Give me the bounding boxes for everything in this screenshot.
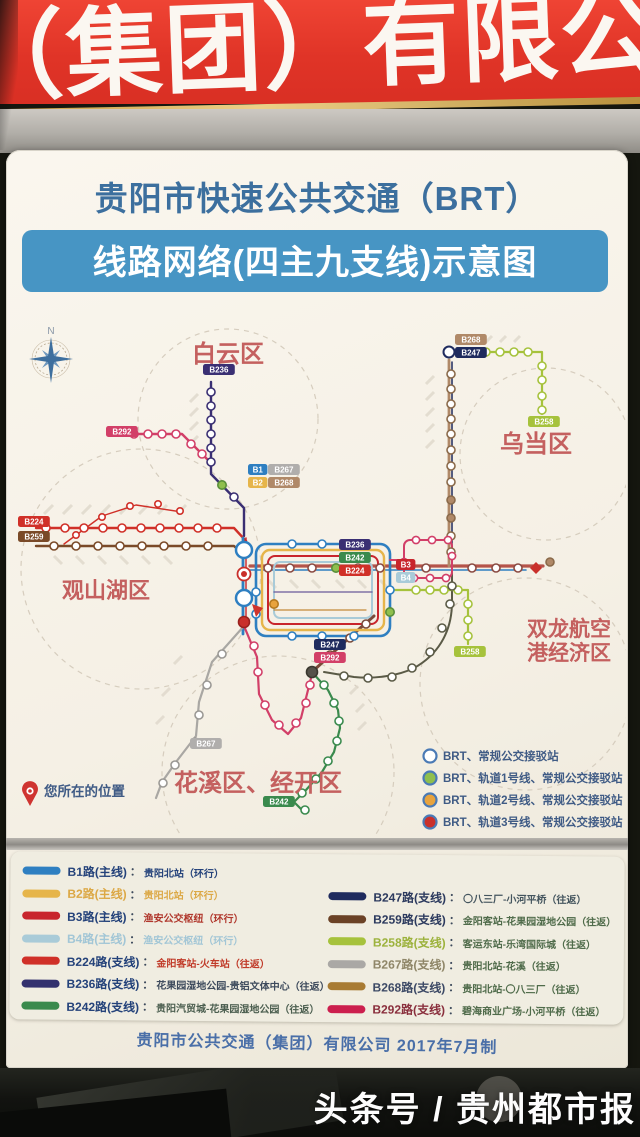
compass-icon: [29, 337, 73, 383]
route-badge-b3: B3: [396, 559, 415, 570]
svg-text:B258: B258: [460, 648, 480, 657]
frame-seam: [6, 838, 628, 850]
svg-text:B2: B2: [253, 479, 264, 488]
company-red-banner: （集团）有限公司: [0, 0, 640, 104]
legend-row: B259路(支线)：金阳客站-花果园湿地公园（往返）: [328, 908, 616, 933]
route-badge-b268: B268: [268, 477, 300, 488]
legend-row: B292路(支线)：碧海商业广场-小河平桥（往返）: [327, 998, 615, 1023]
svg-text:B258: B258: [534, 418, 554, 427]
legend-row: B267路(支线)：贵阳北站-花溪（往返）: [328, 953, 616, 978]
legend-route-name: B236路(支线): [67, 975, 140, 993]
route-badge-b224: B224: [18, 516, 50, 527]
interchange-station: [236, 542, 252, 558]
legend-row: B3路(主线)：渔安公交枢纽（环行）: [22, 904, 330, 929]
legend-route-desc: 贵阳北站（环行）: [144, 864, 224, 880]
route-badge-b236: B236: [339, 539, 371, 550]
route-badge-b247: B247: [314, 639, 346, 650]
legend-separator: ：: [448, 957, 459, 973]
svg-text:B242: B242: [345, 554, 365, 563]
svg-text:B292: B292: [320, 654, 340, 663]
legend-route-desc: 贵阳北站（环行）: [144, 887, 224, 903]
legend-route-name: B259路(支线): [373, 911, 446, 929]
route-badge-b242: B242: [339, 552, 371, 563]
legend-route-desc: 贵阳北站-花溪（往返）: [462, 958, 565, 974]
route-badge-b1: B1: [248, 464, 267, 475]
region-label: 港经济区: [527, 641, 611, 665]
watermark-text: 头条号 / 贵州都市报: [314, 1082, 636, 1131]
legend-row: B258路(支线)：客运东站-乐湾国际城（往返）: [328, 930, 616, 955]
legend-line-swatch: [21, 1002, 59, 1010]
legend-row: B247路(支线)：〇八三厂-小河平桥（往返）: [328, 885, 616, 910]
legend-line-swatch: [22, 979, 60, 987]
legend-route-name: B258路(支线): [373, 933, 446, 951]
route-badge-b258: B258: [454, 646, 486, 657]
legend-separator: ：: [448, 979, 459, 995]
legend-line-swatch: [328, 937, 366, 945]
legend-separator: ：: [448, 1002, 459, 1018]
legend-separator: ：: [130, 864, 141, 880]
map-dynamic-labels: 白云区乌当区观山湖区双龙航空港经济区花溪区、经开区B236B292B224B25…: [18, 326, 623, 829]
legend-route-desc: 客运东站-乐湾国际城（往返）: [463, 935, 596, 951]
compass-n-label: N: [47, 326, 54, 337]
svg-text:B236: B236: [345, 541, 365, 550]
legend-line-swatch: [328, 960, 366, 968]
photo-of-brt-poster: （集团）有限公司 贵阳市快速公共交通（BRT） 线路网络(四主九支线)示意图: [0, 0, 640, 1137]
legend-row: B4路(主线)：渔安公交枢纽（环行）: [22, 927, 330, 952]
svg-text:B247: B247: [320, 641, 340, 650]
interchange-station: [236, 590, 252, 606]
legend-column-left: B1路(主线)：贵阳北站（环行）B2路(主线)：贵阳北站（环行）B3路(主线)：…: [21, 859, 330, 1019]
legend-line-swatch: [327, 1005, 365, 1013]
station-legend-item: BRT、轨道1号线、常规公交接驳站: [424, 771, 624, 785]
legend-line-swatch: [328, 982, 366, 990]
legend-separator: ：: [449, 934, 460, 950]
station-legend-item: BRT、轨道3号线、常规公交接驳站: [424, 815, 624, 829]
route-badge-b267: B267: [268, 464, 300, 475]
legend-route-desc: 贵阳汽贸城-花果园湿地公园（往返）: [156, 999, 319, 1015]
svg-text:B224: B224: [345, 567, 365, 576]
current-location-label: 您所在的位置: [44, 783, 125, 799]
legend-route-name: B224路(支线): [67, 953, 140, 971]
legend-row: B242路(支线)：贵阳汽贸城-花果园湿地公园（往返）: [21, 994, 329, 1019]
legend-route-name: B267路(支线): [373, 956, 446, 974]
svg-text:BRT、轨道2号线、常规公交接驳站: BRT、轨道2号线、常规公交接驳站: [443, 793, 623, 807]
region-label: 乌当区: [500, 430, 572, 458]
station-legend-item: BRT、常规公交接驳站: [424, 749, 560, 763]
region-label: 观山湖区: [62, 578, 150, 603]
legend-column-right: B247路(支线)：〇八三厂-小河平桥（往返）B259路(支线)：金阳客站-花果…: [327, 885, 616, 1023]
legend-route-desc: 渔安公交枢纽（环行）: [143, 909, 243, 925]
svg-text:B4: B4: [401, 574, 412, 583]
legend-route-desc: 金阳客站-花果园湿地公园（往返）: [463, 913, 616, 929]
route-badge-b292: B292: [106, 426, 138, 437]
route-badge-b4: B4: [396, 572, 415, 583]
route-badge-b242: B242: [263, 796, 295, 807]
legend-row: B224路(支线)：金阳客站-火车站（往返）: [22, 949, 330, 974]
route-b258-line-south: [388, 590, 468, 644]
region-label: 花溪区、经开区: [174, 769, 342, 797]
rail3-interchange: [238, 568, 251, 581]
legend-separator: ：: [449, 912, 460, 928]
photo-corner-shadow: [0, 0, 18, 150]
photo-bottom-band: 头条号 / 贵州都市报: [0, 1068, 640, 1137]
legend-route-desc: 金阳客站-火车站（往返）: [156, 954, 269, 970]
legend-line-swatch: [22, 912, 60, 920]
route-b258-line-north: [458, 352, 542, 414]
legend-line-swatch: [22, 934, 60, 942]
legend-route-name: B292路(支线): [372, 1001, 445, 1019]
svg-text:B236: B236: [209, 366, 229, 375]
route-badge-b267: B267: [190, 738, 222, 749]
brt-network-map: 白云区乌当区观山湖区双龙航空港经济区花溪区、经开区B236B292B224B25…: [6, 304, 628, 836]
legend-route-desc: 渔安公交枢纽（环行）: [143, 932, 243, 948]
brt-map-svg: 白云区乌当区观山湖区双龙航空港经济区花溪区、经开区B236B292B224B25…: [6, 304, 626, 836]
svg-text:B259: B259: [24, 533, 44, 542]
route-badge-b247: B247: [455, 347, 487, 358]
svg-text:B242: B242: [269, 798, 289, 807]
legend-line-swatch: [23, 867, 61, 875]
legend-separator: ：: [142, 976, 153, 992]
route-badge-b224: B224: [339, 565, 371, 576]
legend-route-name: B268路(支线): [373, 978, 446, 996]
legend-separator: ：: [142, 999, 153, 1015]
legend-row: B1路(主线)：贵阳北站（环行）: [22, 859, 330, 884]
legend-route-desc: 碧海商业广场-小河平桥（往返）: [462, 1003, 605, 1019]
region-label: 白云区: [192, 340, 264, 368]
legend-row: B268路(支线)：贵阳北站-〇八三厂（往返）: [327, 975, 615, 1000]
legend-route-desc: 花果园湿地公园-贵铝文体中心（往返）: [156, 977, 329, 994]
svg-text:B292: B292: [112, 428, 132, 437]
legend-line-swatch: [328, 892, 366, 900]
legend-route-name: B247路(支线): [373, 888, 446, 906]
legend-route-desc: 〇八三厂-小河平桥（往返）: [463, 890, 586, 906]
legend-route-name: B2路(主线): [67, 885, 126, 903]
svg-text:BRT、轨道3号线、常规公交接驳站: BRT、轨道3号线、常规公交接驳站: [443, 815, 623, 829]
route-badge-b258: B258: [528, 416, 560, 427]
dark-hub-station: [307, 667, 318, 678]
station-legend-item: BRT、轨道2号线、常规公交接驳站: [424, 793, 624, 807]
legend-route-name: B4路(主线): [67, 930, 126, 948]
legend-route-name: B1路(主线): [68, 863, 127, 881]
legend-separator: ：: [129, 909, 140, 925]
legend-route-name: B242路(支线): [66, 998, 139, 1016]
legend-line-swatch: [328, 915, 366, 923]
region-label: 双龙航空: [527, 617, 611, 641]
legend-separator: ：: [130, 886, 141, 902]
poster-title: 贵阳市快速公共交通（BRT）: [6, 172, 628, 220]
svg-text:B267: B267: [196, 740, 216, 749]
legend-row: B2路(主线)：贵阳北站（环行）: [22, 882, 330, 907]
route-legend-card: B1路(主线)：贵阳北站（环行）B2路(主线)：贵阳北站（环行）B3路(主线)：…: [9, 851, 624, 1024]
legend-row: B236路(支线)：花果园湿地公园-贵铝文体中心（往返）: [21, 972, 329, 997]
company-banner-text: （集团）有限公司: [0, 0, 640, 104]
svg-text:B268: B268: [274, 479, 294, 488]
svg-text:B247: B247: [461, 349, 481, 358]
legend-separator: ：: [449, 889, 460, 905]
frame-band: [0, 109, 640, 153]
route-badge-b292: B292: [314, 652, 346, 663]
route-b236-line: [211, 382, 244, 536]
legend-line-swatch: [22, 889, 60, 897]
legend-line-swatch: [22, 957, 60, 965]
poster-footer: 贵阳市公共交通（集团）有限公司 2017年7月制: [6, 1023, 628, 1060]
legend-separator: ：: [142, 954, 153, 970]
svg-text:BRT、轨道1号线、常规公交接驳站: BRT、轨道1号线、常规公交接驳站: [443, 771, 623, 785]
current-location-marker: 您所在的位置: [22, 781, 125, 806]
svg-text:B224: B224: [24, 518, 44, 527]
route-badge-b2: B2: [248, 477, 267, 488]
svg-text:B267: B267: [274, 466, 294, 475]
legend-separator: ：: [129, 931, 140, 947]
legend-route-name: B3路(主线): [67, 908, 126, 926]
route-badge-b259: B259: [18, 531, 50, 542]
svg-text:BRT、常规公交接驳站: BRT、常规公交接驳站: [443, 749, 559, 763]
svg-text:B1: B1: [253, 466, 264, 475]
brt-poster-card: 贵阳市快速公共交通（BRT） 线路网络(四主九支线)示意图: [6, 150, 628, 1068]
svg-text:B268: B268: [461, 336, 481, 345]
poster-subtitle-banner: 线路网络(四主九支线)示意图: [22, 230, 608, 292]
route-badge-b268: B268: [455, 334, 487, 345]
route-badge-b236: B236: [203, 364, 235, 375]
svg-text:B3: B3: [401, 561, 412, 570]
legend-route-desc: 贵阳北站-〇八三厂（往返）: [462, 980, 585, 996]
